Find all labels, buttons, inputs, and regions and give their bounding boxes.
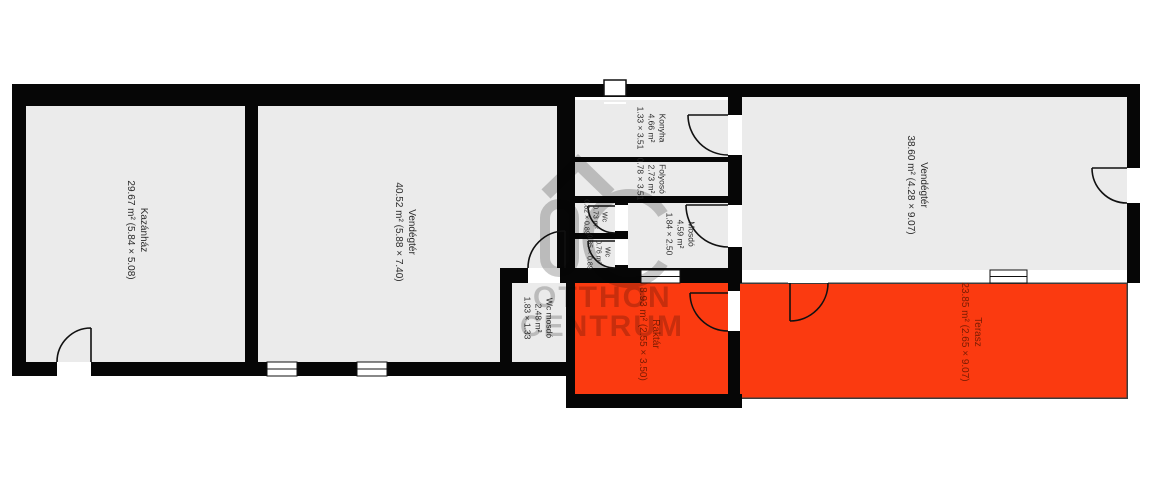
room-size: 2.73 m² (646, 158, 657, 201)
room-size: 0.76 m² (593, 234, 602, 269)
room-name: Kazánház (136, 180, 149, 279)
room-size: 23.85 m² (2.65 × 9.07) (957, 282, 970, 381)
room-label-wc-1: Wc 0.73 m² 0.82 × 0.89 (581, 199, 608, 234)
room-size: 0.73 m² (590, 199, 599, 234)
room-name: Wc mosdó (543, 297, 554, 340)
room-name: Konyha (656, 107, 667, 150)
room-dims: 0.78 × 3.51 (635, 158, 646, 201)
room-dims: 1.83 × 1.33 (522, 297, 533, 340)
room-label-vendegter-left: Vendégtér 40.52 m² (5.88 × 7.40) (391, 182, 417, 281)
room-name: Wc (598, 199, 607, 234)
room-label-wc-mosdo: Wc mosdó 2.48 m² 1.83 × 1.33 (522, 297, 555, 340)
room-labels: Kazánház 29.67 m² (5.84 × 5.08) Vendégté… (0, 0, 1159, 503)
room-size: 2.48 m² (533, 297, 544, 340)
room-dims: 0.85 × 0.89 (584, 234, 593, 269)
room-name: Vendégtér (916, 135, 929, 234)
room-label-wc-2: Wc 0.76 m² 0.85 × 0.89 (584, 234, 611, 269)
room-size: 29.67 m² (5.84 × 5.08) (123, 180, 136, 279)
room-label-terasz: Terasz 23.85 m² (2.65 × 9.07) (957, 282, 983, 381)
room-label-folyoso: Folyosó 2.73 m² 0.78 × 3.51 (635, 158, 668, 201)
room-size: 4.66 m² (646, 107, 657, 150)
room-label-kazanhaz: Kazánház 29.67 m² (5.84 × 5.08) (123, 180, 149, 279)
room-size: 4.59 m² (675, 213, 686, 256)
room-size: 38.60 m² (4.28 × 9.07) (903, 135, 916, 234)
room-dims: 0.82 × 0.89 (581, 199, 590, 234)
room-name: Terasz (970, 282, 983, 381)
room-label-vendegter-right: Vendégtér 38.60 m² (4.28 × 9.07) (903, 135, 929, 234)
room-label-konyha: Konyha 4.66 m² 1.33 × 3.51 (635, 107, 668, 150)
room-name: Raktár (648, 287, 661, 381)
room-dims: 1.84 × 2.50 (664, 213, 675, 256)
room-name: Wc (601, 234, 610, 269)
room-size: 40.52 m² (5.88 × 7.40) (391, 182, 404, 281)
floor-plan-canvas: Kazánház 29.67 m² (5.84 × 5.08) Vendégté… (0, 0, 1159, 503)
room-label-raktar: Raktár 8.93 m² (2.55 × 3.50) (635, 287, 661, 381)
room-name: Vendégtér (404, 182, 417, 281)
room-name: Mosdó (685, 213, 696, 256)
room-name: Folyosó (656, 158, 667, 201)
room-dims: 1.33 × 3.51 (635, 107, 646, 150)
room-size: 8.93 m² (2.55 × 3.50) (635, 287, 648, 381)
room-label-mosdo: Mosdó 4.59 m² 1.84 × 2.50 (664, 213, 697, 256)
